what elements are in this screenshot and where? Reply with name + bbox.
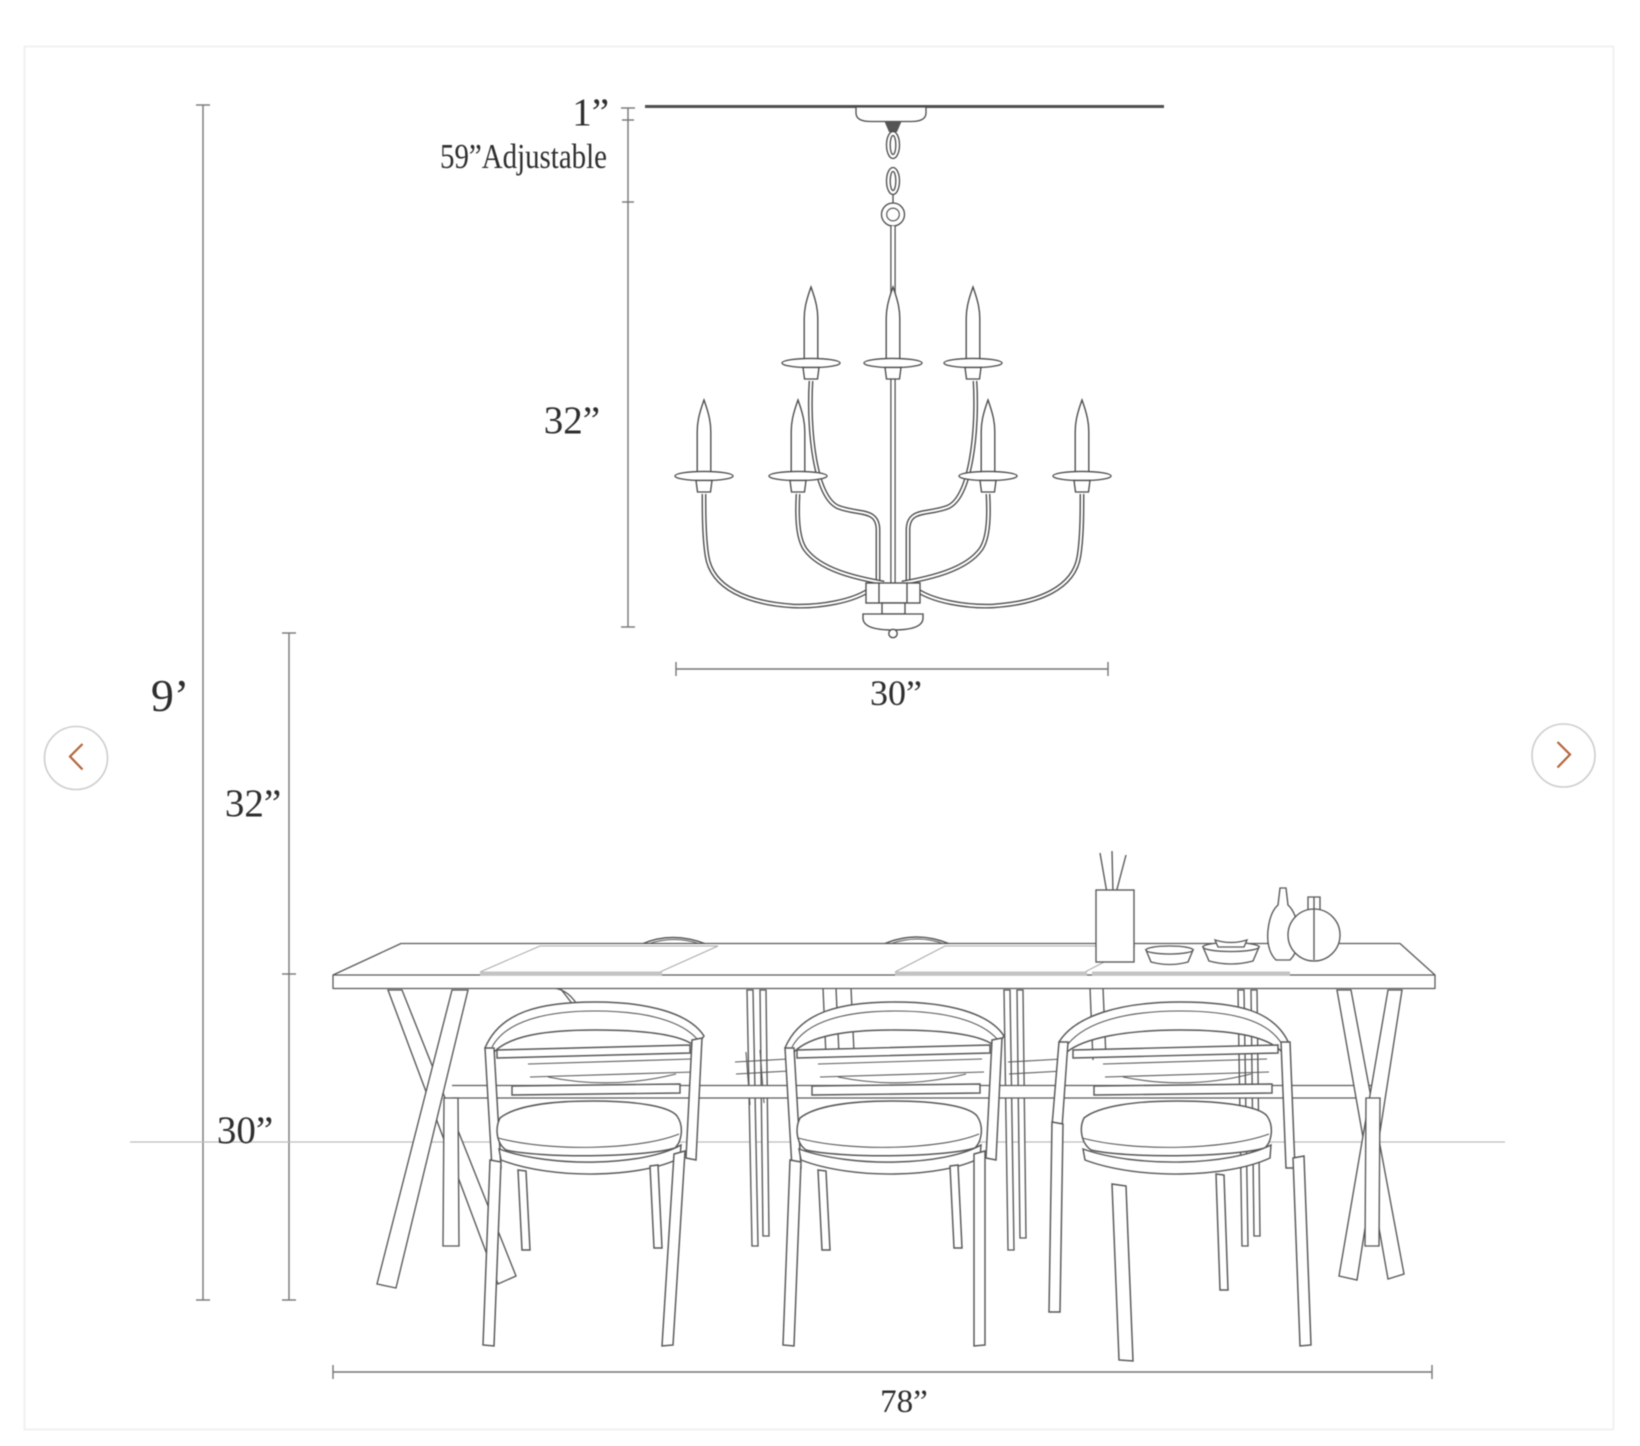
- svg-text:78”: 78”: [880, 1384, 928, 1420]
- svg-text:30”: 30”: [870, 673, 922, 713]
- svg-text:9’: 9’: [151, 670, 189, 721]
- svg-text:1”: 1”: [572, 91, 609, 134]
- svg-text:59”Adjustable: 59”Adjustable: [440, 137, 607, 176]
- svg-text:32”: 32”: [225, 782, 281, 825]
- svg-text:32”: 32”: [544, 399, 600, 442]
- svg-text:30”: 30”: [217, 1109, 273, 1152]
